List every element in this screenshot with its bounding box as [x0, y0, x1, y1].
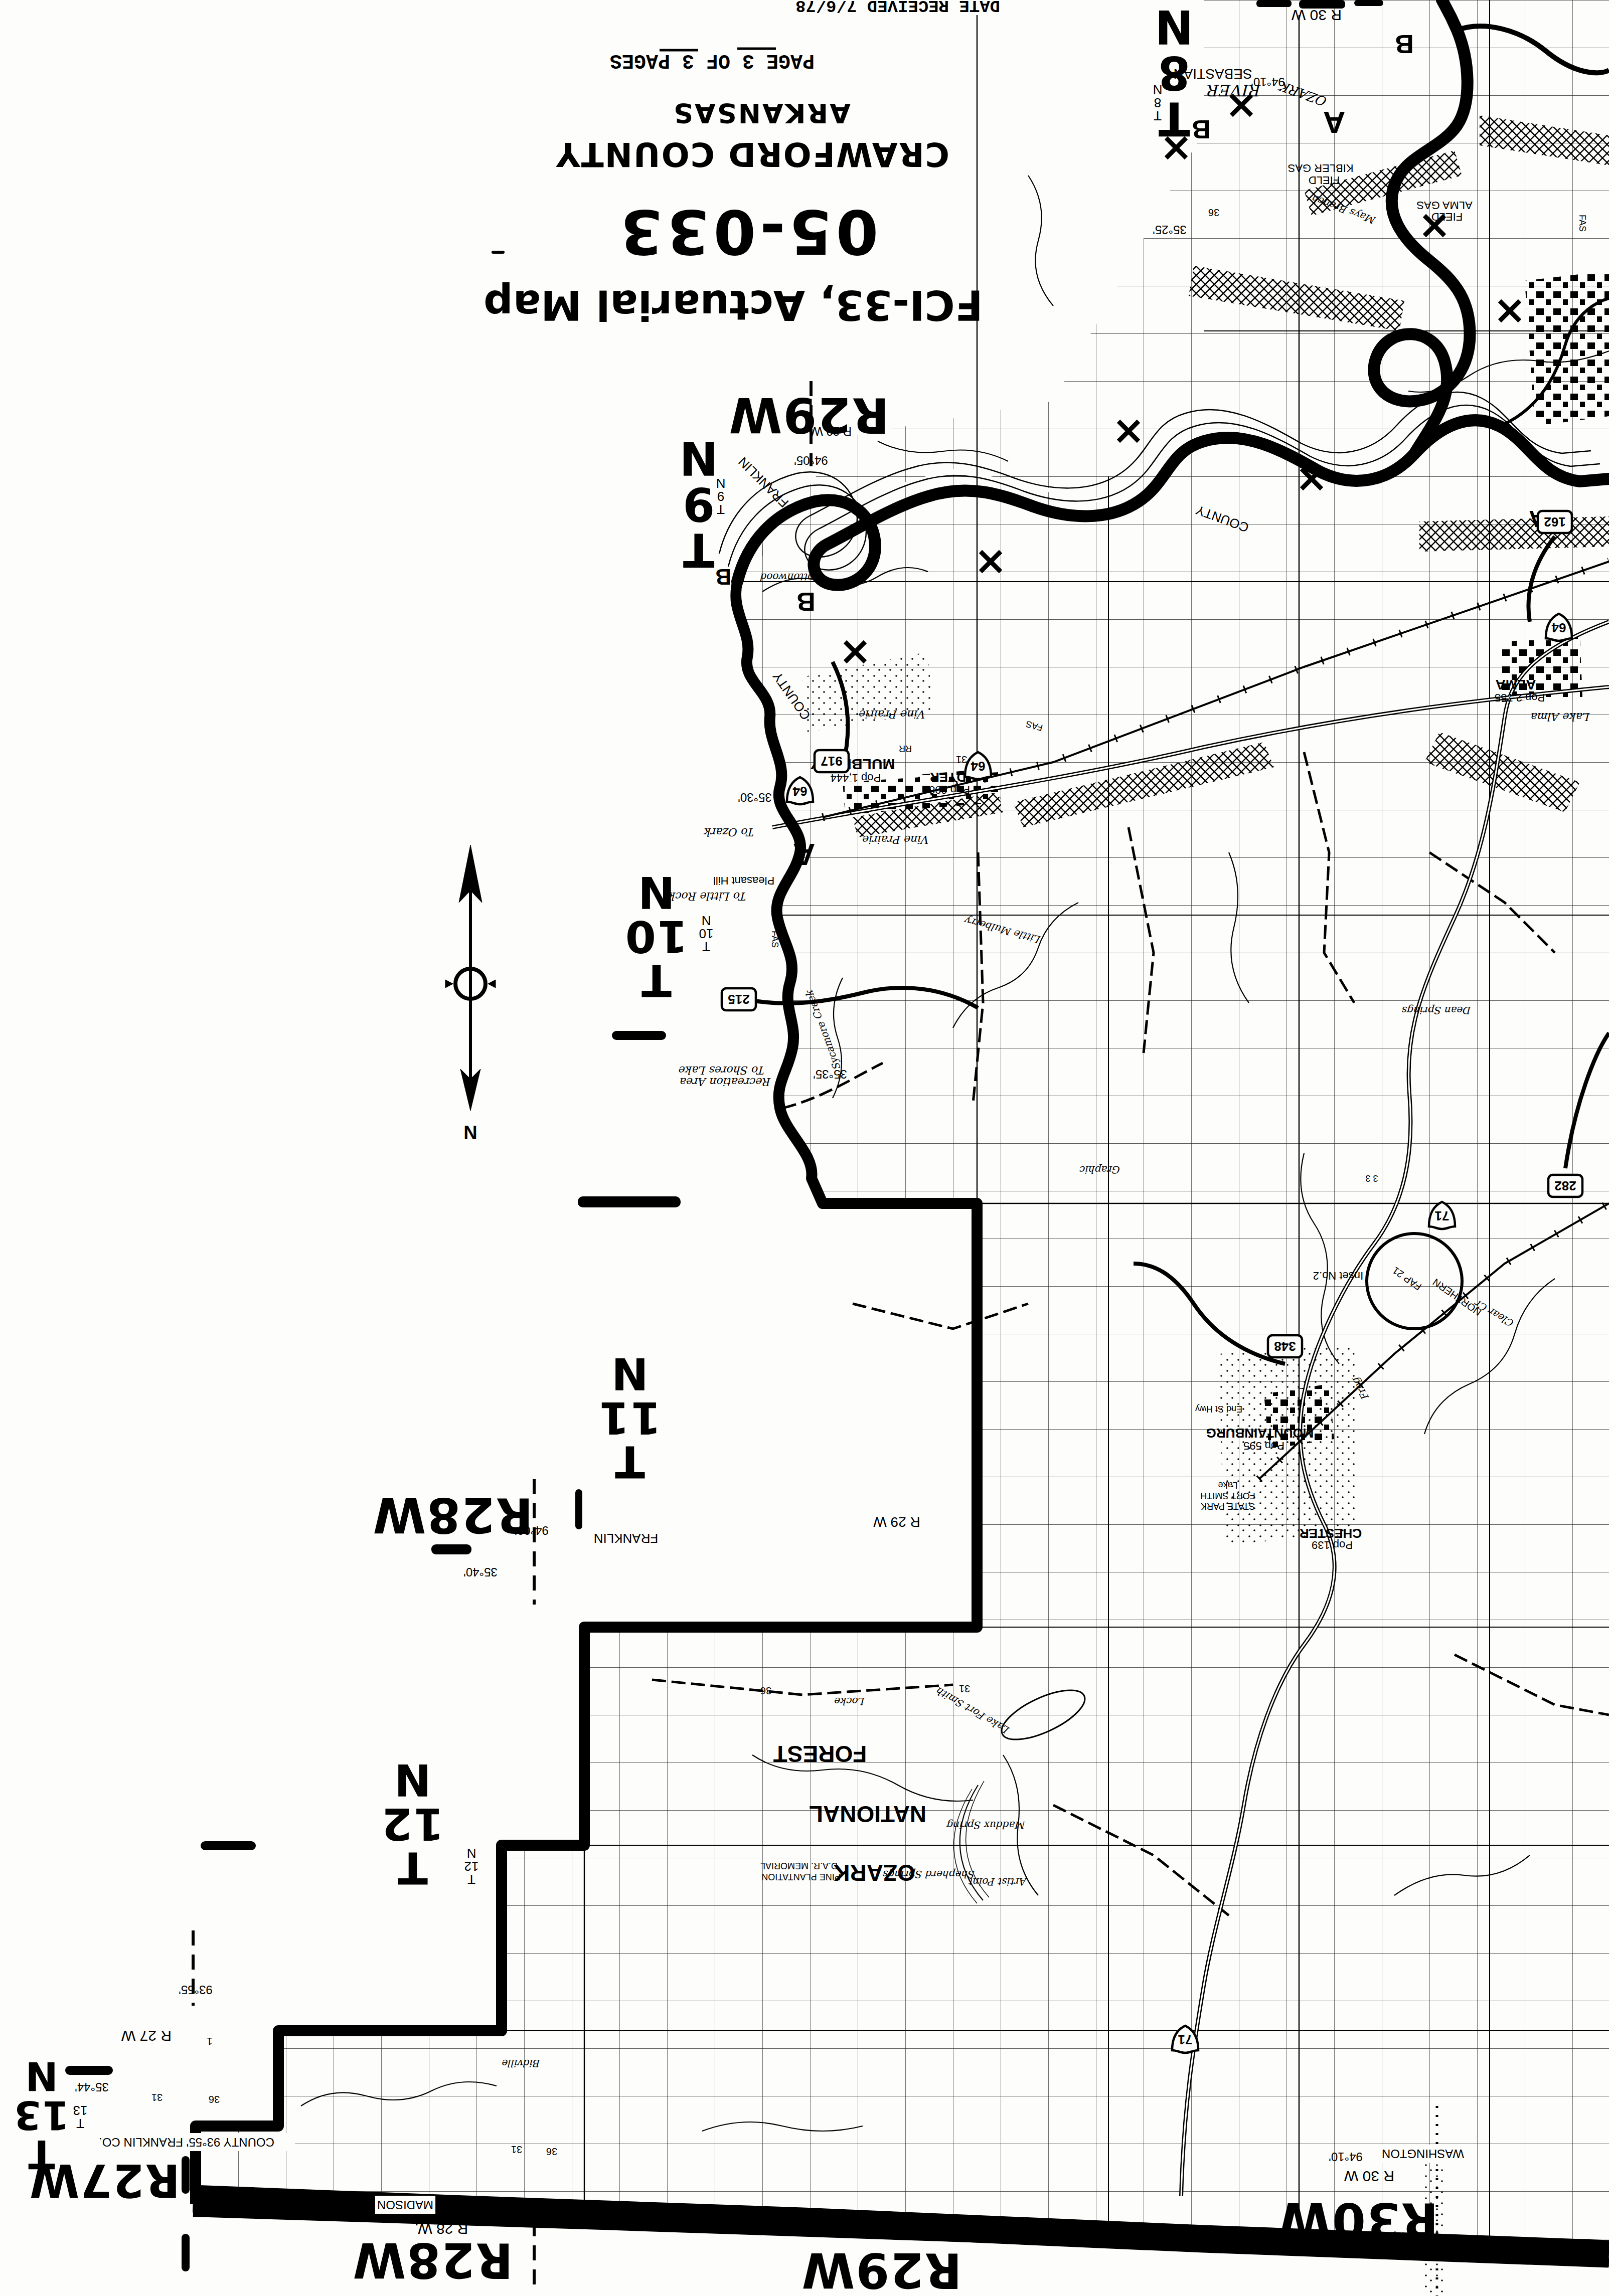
svg-text:Cottonwood: Cottonwood: [760, 571, 823, 583]
zone-a-2: A: [793, 837, 816, 872]
grat-94-00-bottom: 94°00': [485, 2206, 519, 2219]
pr-r29w-top: R 29 W: [812, 425, 852, 438]
hw-r27w-bottom: R27W: [29, 2154, 180, 2207]
svg-text:FRANKLIN: FRANKLIN: [594, 1531, 659, 1546]
svg-text:MADISON: MADISON: [377, 2198, 433, 2212]
to-ozark: To Ozark: [703, 826, 754, 838]
shield-ar282: 282: [1548, 1175, 1582, 1197]
svg-text:PINE PLANTATION: PINE PLANTATION: [761, 1872, 840, 1882]
hw-r30w-bottom: R30W: [1277, 2192, 1438, 2248]
town-dyer-pop: Pop 608: [929, 784, 970, 796]
sec-36-a: 36: [1208, 207, 1219, 218]
grat-35-40: 35°40': [463, 1565, 498, 1579]
svg-text:R29W: R29W: [800, 2242, 961, 2296]
svg-text:94°00': 94°00': [515, 1524, 549, 1537]
dar-memorial-1: D.A.R. MEMORIAL: [760, 1861, 838, 1871]
dar-memorial-2: PINE PLANTATION: [761, 1872, 840, 1882]
town-mountainburg: MOUNTAINBURG: [1206, 1426, 1314, 1441]
locke: Locke: [835, 1695, 866, 1707]
county-washington: WASHINGTON: [1382, 2145, 1465, 2163]
sec-36-c: 36: [209, 2094, 220, 2105]
svg-text:R 30 W: R 30 W: [1344, 2168, 1394, 2185]
sec-31-c: 31: [151, 2092, 163, 2103]
title-map-name: FCI-33, Actuarial Map: [484, 283, 983, 326]
vine-prairie-1: Vine Prairie: [859, 708, 926, 721]
alma-gas-field-1: ALMA GAS: [1416, 199, 1472, 212]
hw-t9n: T9N: [679, 431, 718, 577]
rr-label: RR: [899, 744, 912, 754]
svg-text:Lake: Lake: [1218, 1480, 1237, 1490]
svg-text:Locke: Locke: [835, 1695, 866, 1707]
fas-1: FAS: [770, 931, 780, 948]
svg-text:DYER: DYER: [930, 770, 966, 785]
svg-text:35°35': 35°35': [813, 1068, 847, 1081]
svg-text:215: 215: [728, 992, 749, 1007]
svg-text:RR: RR: [899, 744, 912, 754]
svg-text:Inset No.2: Inset No.2: [1313, 1270, 1363, 1282]
title-county: CRAWFORD COUNTY: [555, 136, 949, 171]
sec-36-b: 36: [760, 1685, 771, 1696]
svg-text:B: B: [796, 587, 816, 616]
svg-text:Dean Springs: Dean Springs: [1402, 1004, 1472, 1016]
svg-text:94°10': 94°10': [1329, 2150, 1363, 2164]
svg-text:CHESTER: CHESTER: [1300, 1526, 1362, 1541]
county-franklin-top: FRANKLIN: [735, 454, 791, 510]
svg-text:31: 31: [959, 1683, 970, 1694]
svg-text:64: 64: [792, 784, 807, 799]
title-map-number: 05-033: [616, 200, 878, 264]
shield-ar348: 348: [1268, 1335, 1302, 1357]
zone-b-1: B: [1192, 115, 1211, 144]
pr-t12n: T12N: [464, 1846, 479, 1887]
hw-r29w-top: R29W: [728, 387, 889, 443]
pr-t13: T13: [73, 2103, 88, 2131]
actuarial-map-canvas: N T8NT9NT10NT11NT12NT13NR29WR28WR27WR28W…: [0, 0, 1609, 2296]
svg-text:71: 71: [1435, 1208, 1450, 1223]
svg-text:NATIONAL: NATIONAL: [809, 1801, 926, 1827]
svg-text:T10N: T10N: [624, 866, 688, 1006]
hw-t11n: T11N: [598, 1348, 661, 1488]
svg-text:1: 1: [207, 2036, 212, 2047]
svg-text:36: 36: [760, 1685, 771, 1696]
dean-springs: Dean Springs: [1402, 1004, 1472, 1016]
grat-94-10-bottom: 94°10': [1329, 2150, 1363, 2164]
svg-text:End St Hwy: End St Hwy: [1195, 1404, 1242, 1414]
svg-text:R 28 W.: R 28 W.: [415, 2221, 468, 2237]
svg-text:To Ozark: To Ozark: [703, 826, 754, 838]
county-sebastian: SEBASTIAN: [1173, 66, 1252, 82]
svg-text:31: 31: [511, 2144, 522, 2155]
svg-text:35°30': 35°30': [738, 791, 772, 804]
svg-text:T9N: T9N: [716, 476, 726, 517]
bidville: Bidville: [502, 2057, 541, 2069]
zone-b-3: B: [796, 587, 816, 616]
town-alma: ALMA: [1496, 677, 1536, 692]
map-geometry-layer: N T8NT9NT10NT11NT12NT13NR29WR28WR27WR28W…: [13, 0, 1609, 2296]
svg-text:MOUNTAINBURG: MOUNTAINBURG: [1206, 1426, 1314, 1441]
svg-text:KIBLER GAS: KIBLER GAS: [1288, 162, 1354, 174]
to-shores-lake-2: Recreation Area: [680, 1076, 771, 1088]
river-label: RIVER: [1207, 81, 1261, 100]
svg-text:Pop 139: Pop 139: [1312, 1539, 1353, 1551]
hw-r29w-bottom: R29W: [800, 2242, 961, 2296]
vine-prairie-2: Vine Prairie: [862, 833, 930, 846]
svg-text:A: A: [1323, 105, 1346, 140]
svg-text:64: 64: [971, 759, 985, 774]
title-state: ARKANSAS: [672, 99, 851, 127]
town-mountainburg-pop: Pop 595: [1243, 1440, 1284, 1452]
forest-big: FOREST: [773, 1741, 867, 1767]
svg-text:94°00': 94°00': [485, 2206, 519, 2219]
kibler-gas-field-2: FIELD: [1309, 174, 1340, 187]
title-date-line: DATE RECEIVED 7/6/78: [795, 0, 1000, 14]
svg-text:FORT SMITH: FORT SMITH: [1200, 1491, 1255, 1501]
pr-t8n: T8N: [1153, 82, 1163, 123]
sec-31-d: 31: [511, 2144, 522, 2155]
svg-text:WASHINGTON: WASHINGTON: [1382, 2147, 1464, 2161]
town-alma-pop: Pop 2,755: [1495, 691, 1545, 704]
svg-text:36: 36: [209, 2094, 220, 2105]
svg-text:64: 64: [1551, 620, 1566, 635]
svg-text:R27W: R27W: [29, 2154, 180, 2207]
title-page-line: PAGE 3 OF 3 PAGES: [610, 50, 815, 71]
svg-text:35°25': 35°25': [1153, 223, 1187, 237]
hw-r28w-bottom: R28W: [352, 2232, 513, 2288]
grat-94-00-mid: 94°00': [515, 1524, 549, 1537]
county-madison: MADISON: [375, 2196, 435, 2214]
shield-ar917: 917: [815, 750, 849, 772]
svg-text:FOREST: FOREST: [773, 1741, 867, 1767]
svg-text:31: 31: [151, 2092, 163, 2103]
town-chester-pop: Pop 139: [1312, 1539, 1353, 1551]
hw-r28w-left: R28W: [372, 1487, 533, 1543]
pr-t10n: T10N: [699, 913, 714, 954]
svg-text:282: 282: [1554, 1178, 1576, 1193]
lfs-park-2: FORT SMITH: [1200, 1491, 1255, 1501]
scanned-map-page: N T8NT9NT10NT11NT12NT13NR29WR28WR27WR28W…: [0, 0, 1609, 2296]
graphic: Graphic: [1079, 1164, 1121, 1176]
svg-text:T13: T13: [73, 2103, 88, 2131]
svg-text:R 29 W: R 29 W: [873, 1514, 920, 1530]
svg-text:To Shores Lake: To Shores Lake: [678, 1064, 765, 1077]
svg-text:T12N: T12N: [464, 1846, 479, 1887]
alma-gas-field-2: FIELD: [1431, 211, 1463, 223]
svg-text:Pop 595: Pop 595: [1243, 1440, 1284, 1452]
svg-text:D.A.R. MEMORIAL: D.A.R. MEMORIAL: [760, 1861, 838, 1871]
svg-text:R 30 W: R 30 W: [1291, 7, 1342, 24]
svg-text:R 29 W: R 29 W: [812, 425, 852, 438]
grat-35-44: 35°44': [75, 2080, 109, 2094]
svg-text:R28W: R28W: [372, 1487, 533, 1543]
svg-text:36: 36: [546, 2146, 557, 2157]
svg-text:SEBASTIAN: SEBASTIAN: [1173, 66, 1252, 82]
svg-text:31: 31: [956, 754, 967, 765]
grat-35-30: 35°30': [738, 791, 772, 804]
town-dyer: DYER: [930, 770, 966, 785]
svg-text:N: N: [463, 1122, 477, 1143]
svg-text:Lake Alma: Lake Alma: [1531, 711, 1590, 723]
svg-text:B: B: [1395, 30, 1414, 59]
zone-a-1: A: [1323, 105, 1346, 140]
svg-text:35°44': 35°44': [75, 2080, 109, 2094]
svg-text:ALMA: ALMA: [1496, 677, 1536, 692]
pleasant-hill: Pleasant Hill: [713, 874, 774, 887]
pr-r30w-top: R 30 W: [1291, 7, 1342, 24]
kibler-gas-field-1: KIBLER GAS: [1288, 162, 1354, 174]
sec-31-b: 31: [959, 1683, 970, 1694]
lfs-park-1: Lake: [1218, 1480, 1237, 1490]
svg-text:R28W: R28W: [352, 2232, 513, 2288]
svg-text:94°05': 94°05': [794, 454, 828, 467]
pr-r29w-mid: R 29 W: [873, 1514, 920, 1530]
zone-b-2: B: [1395, 30, 1414, 59]
svg-text:FIELD: FIELD: [1431, 211, 1463, 223]
pr-t9n: T9N: [716, 476, 726, 517]
svg-text:FIELD: FIELD: [1309, 174, 1340, 187]
end-st-hwy: End St Hwy: [1195, 1404, 1242, 1414]
svg-text:93°55': 93°55': [179, 1983, 213, 1997]
svg-text:917: 917: [821, 754, 842, 769]
national-big: NATIONAL: [809, 1801, 926, 1827]
svg-text:Pop 2,755: Pop 2,755: [1495, 691, 1545, 704]
town-mulberry-pop: Pop 1,444: [831, 772, 881, 784]
pr-r30w-bottom: R 30 W: [1344, 2168, 1394, 2185]
pr-r27w: R 27 W: [121, 2028, 172, 2044]
svg-text:Pop 608: Pop 608: [929, 784, 970, 796]
svg-text:Graphic: Graphic: [1079, 1164, 1121, 1176]
hw-t10n: T10N: [624, 866, 688, 1006]
svg-text:T11N: T11N: [598, 1348, 661, 1488]
pr-r28w: R 28 W.: [415, 2221, 468, 2237]
inset-no2: Inset No.2: [1313, 1270, 1363, 1282]
svg-text:B: B: [715, 565, 731, 589]
svg-text:Pop 1,444: Pop 1,444: [831, 772, 881, 784]
svg-text:3 3: 3 3: [1365, 1173, 1378, 1183]
maddux-spring: Maddux Spring: [946, 1819, 1026, 1831]
county-bottom-band: COUNTY 93°55' FRANKLIN CO.: [78, 2133, 295, 2151]
svg-text:71: 71: [1178, 2032, 1193, 2047]
county-franklin-left: FRANKLIN: [594, 1531, 659, 1546]
grat-35-35: 35°35': [813, 1068, 847, 1081]
svg-text:FAS: FAS: [770, 931, 780, 948]
ozark-big: OZARK: [833, 1860, 915, 1886]
svg-text:Maddux Spring: Maddux Spring: [946, 1819, 1026, 1831]
grat-35-25: 35°25': [1153, 223, 1187, 237]
svg-text:R30W: R30W: [1277, 2192, 1438, 2248]
svg-text:Artist Point: Artist Point: [968, 1876, 1027, 1888]
grat-94-05: 94°05': [794, 454, 828, 467]
to-little-rock: To Little Rock: [668, 890, 747, 903]
svg-text:T12N: T12N: [381, 1754, 444, 1894]
svg-text:T10N: T10N: [699, 913, 714, 954]
svg-text:T8N: T8N: [1153, 82, 1163, 123]
svg-text:Bidville: Bidville: [502, 2057, 541, 2069]
grat-93-55-left: 93°55': [179, 1983, 213, 1997]
svg-text:FAS: FAS: [1577, 215, 1587, 232]
sec-33: 3 3: [1365, 1173, 1378, 1183]
to-shores-lake-1: To Shores Lake: [678, 1064, 765, 1077]
svg-text:Vine Prairie: Vine Prairie: [859, 708, 926, 721]
svg-text:ALMA GAS: ALMA GAS: [1416, 199, 1472, 212]
svg-text:Vine Prairie: Vine Prairie: [862, 833, 930, 846]
svg-text:B: B: [1192, 115, 1211, 144]
sec-1: 1: [207, 2036, 212, 2047]
svg-text:FRANKLIN: FRANKLIN: [735, 454, 791, 510]
lake-alma: Lake Alma: [1531, 711, 1590, 723]
lfs-park-3: STATE PARK: [1201, 1501, 1255, 1511]
svg-text:Recreation Area: Recreation Area: [680, 1076, 771, 1088]
svg-text:162: 162: [1544, 514, 1565, 529]
zone-b-4: B: [715, 565, 731, 589]
svg-text:R29W: R29W: [728, 387, 889, 443]
svg-text:A: A: [793, 837, 816, 872]
fas-3: FAS: [1577, 215, 1587, 232]
artist-point: Artist Point: [968, 1876, 1027, 1888]
sec-31-a: 31: [956, 754, 967, 765]
svg-text:To Little Rock: To Little Rock: [668, 890, 747, 903]
svg-text:OZARK: OZARK: [833, 1860, 915, 1886]
svg-text:36: 36: [1208, 207, 1219, 218]
sec-36-d: 36: [546, 2146, 557, 2157]
cottonwood: Cottonwood: [760, 571, 823, 583]
svg-text:348: 348: [1274, 1339, 1296, 1354]
svg-text:Pleasant Hill: Pleasant Hill: [713, 874, 774, 887]
svg-text:T9N: T9N: [679, 431, 718, 577]
town-chester: CHESTER: [1300, 1526, 1362, 1541]
shield-ar162: 162: [1538, 511, 1572, 533]
north-arrow: N: [445, 845, 496, 1143]
svg-text:R 27 W: R 27 W: [121, 2028, 172, 2044]
svg-text:COUNTY 93°55' FRANKLIN CO.: COUNTY 93°55' FRANKLIN CO.: [99, 2136, 274, 2149]
svg-text:STATE PARK: STATE PARK: [1201, 1501, 1255, 1511]
shield-ar215: 215: [722, 988, 756, 1010]
svg-text:RIVER: RIVER: [1207, 81, 1261, 100]
hw-t12n: T12N: [381, 1754, 444, 1894]
svg-text:35°40': 35°40': [463, 1565, 498, 1579]
